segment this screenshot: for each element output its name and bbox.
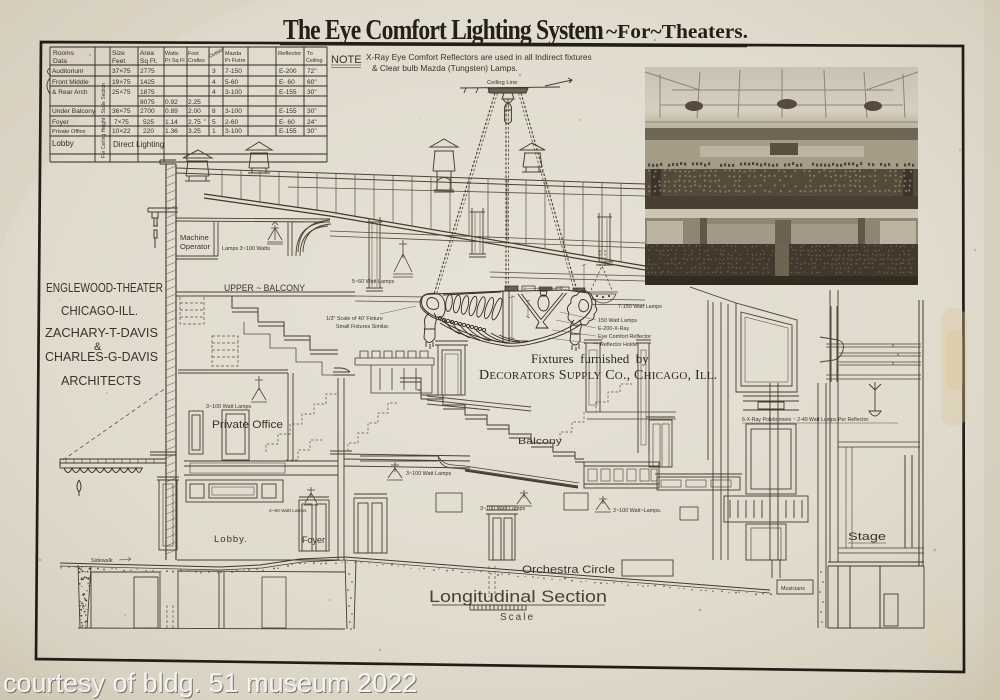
svg-text:3-100: 3-100 [225,108,242,115]
svg-text:& Clear bulb Mazda (Tungsten): & Clear bulb Mazda (Tungsten) Lamps. [372,63,518,73]
svg-text:3: 3 [212,68,216,75]
svg-text:Orchestra Circle: Orchestra Circle [522,564,615,576]
svg-text:Feet: Feet [112,58,125,65]
svg-text:Front Middle: Front Middle [52,79,89,86]
svg-text:courtesy of bldg. 51 museum 20: courtesy of bldg. 51 museum 2022 [3,668,417,698]
svg-text:19×75: 19×75 [112,79,131,86]
svg-text:CHARLES-G-DAVIS: CHARLES-G-DAVIS [45,349,158,364]
svg-text:Stage: Stage [848,531,886,543]
svg-text:Data: Data [53,58,67,65]
svg-text:E- 60: E- 60 [279,119,295,126]
svg-text:NOTE: NOTE [331,54,362,66]
svg-text:Cndles: Cndles [188,58,205,64]
svg-text:ARCHITECTS: ARCHITECTS [61,373,141,388]
svg-text:Direct Lighting: Direct Lighting [113,140,164,149]
svg-text:5-60: 5-60 [225,79,239,86]
svg-text:3.25: 3.25 [188,128,201,135]
svg-text:37×75: 37×75 [112,68,131,75]
svg-text:5~60 Watt Lamps: 5~60 Watt Lamps [352,279,395,285]
svg-text:Private Office: Private Office [212,419,283,431]
svg-text:Pr Sq Ft: Pr Sq Ft [165,58,185,64]
svg-text:Watts: Watts [165,51,179,57]
svg-text:ENGLEWOOD-THEATER: ENGLEWOOD-THEATER [46,280,163,295]
svg-text:1.14: 1.14 [165,119,178,126]
svg-text:Fixtures furnished by: Fixtures furnished by [531,351,649,366]
svg-text:7×75: 7×75 [114,119,129,126]
svg-text:4: 4 [212,89,216,96]
svg-text:Foyer: Foyer [52,119,70,126]
svg-text:8: 8 [212,108,216,115]
svg-text:X-Ray Eye Comfort Reflectors a: X-Ray Eye Comfort Reflectors are used in… [366,52,592,62]
svg-text:2700: 2700 [140,108,155,115]
svg-text:2775: 2775 [140,68,155,75]
svg-text:Lobby.: Lobby. [214,534,248,545]
svg-text:Scale: Scale [500,612,535,623]
svg-text:525: 525 [143,119,154,126]
svg-text:25×75: 25×75 [112,89,131,96]
svg-text:Area: Area [140,50,154,57]
svg-text:& Rear Arch: & Rear Arch [52,89,88,96]
svg-text:E-200-X-Ray: E-200-X-Ray [598,326,629,332]
svg-text:1/3" Scale of 40' Fixture: 1/3" Scale of 40' Fixture [326,316,383,322]
svg-text:To: To [307,51,313,57]
svg-text:Size: Size [112,50,125,57]
svg-text:1875: 1875 [140,89,155,96]
svg-text:30": 30" [307,89,317,96]
svg-text:8075: 8075 [140,99,155,106]
svg-text:4: 4 [212,79,216,86]
svg-text:2.75: 2.75 [188,119,201,126]
svg-text:E-155: E-155 [279,89,297,96]
svg-text:E-155: E-155 [279,128,297,135]
svg-text:Pr Fixtre: Pr Fixtre [225,58,245,64]
svg-text:Machine: Machine [180,233,209,242]
svg-text:10×22: 10×22 [112,128,131,135]
svg-text:ZACHARY-T-DAVIS: ZACHARY-T-DAVIS [45,325,158,340]
svg-text:3-100: 3-100 [225,89,242,96]
svg-text:Small Fixtures Similar.: Small Fixtures Similar. [336,324,389,330]
svg-text:220: 220 [143,128,154,135]
svg-text:Reflector: Reflector [278,51,301,57]
svg-text:CHICAGO-ILL.: CHICAGO-ILL. [61,303,138,318]
svg-text:Eye Comfort Reflector: Eye Comfort Reflector [598,334,651,340]
svg-text:6-X-Ray Polebonnets ~ 2-40 Wat: 6-X-Ray Polebonnets ~ 2-40 Watt Lamps Pe… [742,417,869,423]
svg-text:Auditorium: Auditorium [52,68,84,75]
svg-text:UPPER ~ BALCONY: UPPER ~ BALCONY [224,283,305,293]
svg-text:1: 1 [212,128,216,135]
svg-text:30": 30" [307,128,317,135]
svg-text:7-150 Watt Lamps: 7-150 Watt Lamps [618,304,662,310]
svg-text:DECORATORS SUPPLY CO., CHICAGO: DECORATORS SUPPLY CO., CHICAGO, ILL. [479,368,717,383]
svg-text:Lamps 3~100 Watts: Lamps 3~100 Watts [222,246,270,252]
svg-text:2~60 Watt Lamps: 2~60 Watt Lamps [269,508,307,514]
svg-text:3~100 Watt Lamps: 3~100 Watt Lamps [480,506,526,512]
svg-text:Foyer: Foyer [302,535,325,545]
svg-text:30": 30" [307,108,317,115]
svg-text:Sidewalk: Sidewalk [91,558,113,564]
svg-text:3~100 Watt Lamps: 3~100 Watt Lamps [206,404,252,410]
svg-text:150 Watt Lamps: 150 Watt Lamps [598,318,637,324]
svg-text:Musicians: Musicians [781,586,805,592]
svg-text:3~100 Watt~Lamps.: 3~100 Watt~Lamps. [613,508,661,514]
svg-text:E-200: E-200 [279,68,297,75]
svg-text:7-150: 7-150 [225,68,242,75]
svg-text:The Eye Comfort Lighting Syste: The Eye Comfort Lighting System [283,15,604,46]
svg-text:1.36: 1.36 [165,128,178,135]
svg-text:60": 60" [307,79,317,86]
svg-text:2-60: 2-60 [225,119,239,126]
svg-text:5: 5 [212,119,216,126]
svg-text:2.00: 2.00 [188,108,201,115]
svg-text:3~100 Watt Lamps: 3~100 Watt Lamps [406,471,452,477]
svg-text:3-100: 3-100 [225,128,242,135]
svg-text:Foot: Foot [188,51,199,57]
svg-text:0.92: 0.92 [165,99,178,106]
svg-text:72": 72" [307,68,317,75]
svg-text:Sq Ft.: Sq Ft. [140,58,158,65]
svg-text:E-155: E-155 [279,108,297,115]
svg-text:Mazda: Mazda [225,51,241,57]
svg-text:For Ceiling Height - Scale Sec: For Ceiling Height - Scale Section [101,83,107,158]
svg-text:Ceiling Line: Ceiling Line [487,80,517,86]
svg-text:Rooms: Rooms [53,50,75,57]
svg-text:1425: 1425 [140,79,155,86]
svg-text:Under Balcony: Under Balcony [52,108,96,115]
svg-text:0.89: 0.89 [165,108,178,115]
svg-text:Operator: Operator [180,242,210,251]
svg-text:Ceiling: Ceiling [306,58,322,64]
svg-text:Longitudinal Section: Longitudinal Section [429,588,607,606]
svg-text:36×75: 36×75 [112,108,131,115]
svg-text:Reflector Holder: Reflector Holder [600,342,639,348]
svg-text:Balcony: Balcony [518,436,562,447]
svg-text:Lobby: Lobby [52,139,74,148]
svg-text:Private Office: Private Office [52,129,85,135]
svg-text:24": 24" [307,119,317,126]
svg-text:E- 60: E- 60 [279,79,295,86]
svg-text:2.25: 2.25 [188,99,201,106]
svg-text:~For~Theaters.: ~For~Theaters. [606,21,748,43]
